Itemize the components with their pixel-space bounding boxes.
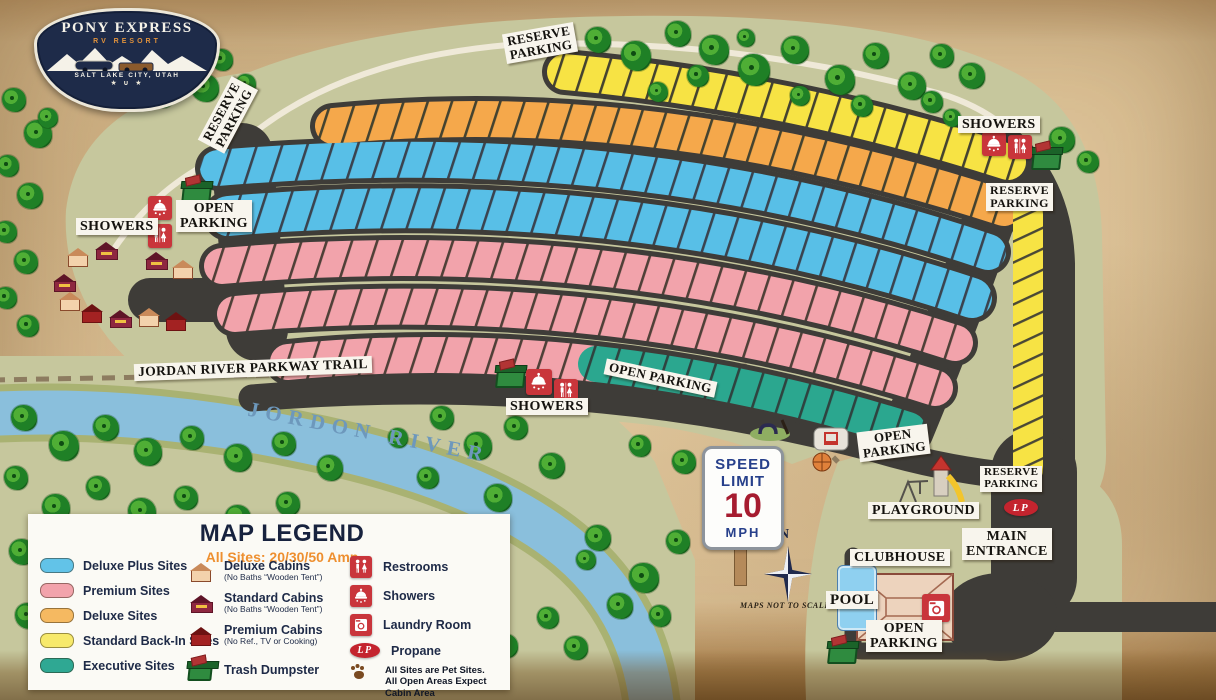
laundry-icon [922, 594, 950, 622]
trash-dumpster-icon [495, 370, 526, 388]
laundry-icon [350, 614, 372, 636]
shower-icon [982, 132, 1006, 156]
speed-sign-unit: MPH [726, 525, 761, 540]
trash-dumpster-icon [827, 646, 858, 664]
legend-facilities: Restrooms Showers Laundry Room LP Propan… [350, 556, 510, 699]
logo-location: SALT LAKE CITY, UTAH [74, 72, 179, 79]
label-clubhouse: CLUBHOUSE [850, 549, 950, 566]
pet-note: All Sites are Pet Sites. All Open Areas … [385, 665, 510, 699]
legend-label: Laundry Room [383, 618, 471, 632]
paw-icon [354, 671, 364, 679]
label-open-parking-west: OPEN PARKING [176, 200, 252, 232]
legend-label: Premium Sites [83, 584, 170, 598]
swatch-deluxe-plus [40, 558, 74, 573]
legend-label: Premium Cabins [224, 624, 323, 637]
shower-icon [350, 585, 372, 607]
resort-map-canvas: PONY EXPRESS RV RESORT SALT LAKE CITY, U… [0, 0, 1216, 700]
label-playground: PLAYGROUND [868, 502, 979, 519]
label-reserve-parking-northeast: RESERVE PARKING [986, 183, 1053, 211]
legend-item-showers: Showers [350, 585, 510, 607]
map-legend-panel: MAP LEGEND All Sites: 20/30/50 Amp Delux… [28, 514, 510, 690]
swatch-deluxe [40, 608, 74, 623]
label-pool: POOL [826, 591, 878, 609]
legend-note: (No Ref., TV or Cooking) [224, 637, 323, 647]
trash-dumpster-icon [188, 656, 214, 678]
propane-badge: LP [350, 643, 380, 658]
legend-title: MAP LEGEND [148, 520, 416, 548]
legend-item-trash-dumpster: Trash Dumpster [188, 656, 353, 678]
legend-label: Executive Sites [83, 659, 175, 673]
legend-label: Deluxe Sites [83, 609, 157, 623]
logo-stars: ★ ∪ ★ [110, 79, 143, 87]
speed-sign-line1: SPEED [715, 456, 771, 473]
legend-cabins: Deluxe Cabins (No Baths “Wooden Tent”) S… [188, 560, 353, 678]
swatch-standard-backin [40, 633, 74, 648]
shower-icon [526, 369, 552, 395]
logo-subtitle: RV RESORT [93, 38, 161, 45]
legend-item-propane: LP Propane [350, 643, 510, 658]
sign-post [734, 544, 747, 586]
legend-label: Restrooms [383, 560, 448, 574]
label-showers-west: SHOWERS [76, 218, 158, 235]
swatch-premium [40, 583, 74, 598]
shower-icon [148, 196, 172, 220]
premium-cabin-icon [188, 624, 214, 646]
legend-note: (No Baths “Wooden Tent”) [224, 573, 322, 583]
legend-item-restrooms: Restrooms [350, 556, 510, 578]
compass-icon [764, 546, 812, 602]
label-open-parking-south: OPEN PARKING [866, 620, 942, 652]
restroom-icon [350, 556, 372, 578]
legend-item-standard-cabins: Standard Cabins (No Baths “Wooden Tent”) [188, 592, 353, 615]
legend-label: Showers [383, 589, 435, 603]
standard-cabin-icon [188, 592, 214, 614]
speed-limit-sign: SPEED LIMIT 10 MPH [702, 446, 784, 550]
legend-item-premium-cabins: Premium Cabins (No Ref., TV or Cooking) [188, 624, 353, 647]
label-main-entrance: MAIN ENTRANCE [962, 528, 1052, 560]
legend-note: (No Baths “Wooden Tent”) [224, 605, 323, 615]
label-reserve-parking-southeast: RESERVE PARKING [980, 466, 1042, 492]
label-showers-northeast: SHOWERS [958, 116, 1040, 133]
propane-badge: LP [1004, 499, 1038, 516]
label-showers-center: SHOWERS [506, 398, 588, 415]
scale-note: MAPS NOT TO SCALE [740, 601, 830, 610]
logo-badge: PONY EXPRESS RV RESORT SALT LAKE CITY, U… [34, 8, 220, 112]
swatch-executive [40, 658, 74, 673]
restroom-icon [1008, 135, 1032, 159]
logo-mountains [47, 45, 207, 71]
trash-dumpster-icon [1031, 152, 1062, 170]
logo-title: PONY EXPRESS [61, 20, 192, 37]
legend-label: Deluxe Plus Sites [83, 559, 187, 573]
speed-sign-value: 10 [724, 490, 762, 522]
legend-label: Trash Dumpster [224, 664, 319, 677]
legend-item-laundry: Laundry Room [350, 614, 510, 636]
deluxe-cabin-icon [188, 560, 214, 582]
resort-logo: PONY EXPRESS RV RESORT SALT LAKE CITY, U… [34, 8, 220, 112]
legend-item-deluxe-cabins: Deluxe Cabins (No Baths “Wooden Tent”) [188, 560, 353, 583]
legend-label: Propane [391, 644, 441, 658]
legend-item-pet-note: All Sites are Pet Sites. All Open Areas … [350, 665, 510, 699]
